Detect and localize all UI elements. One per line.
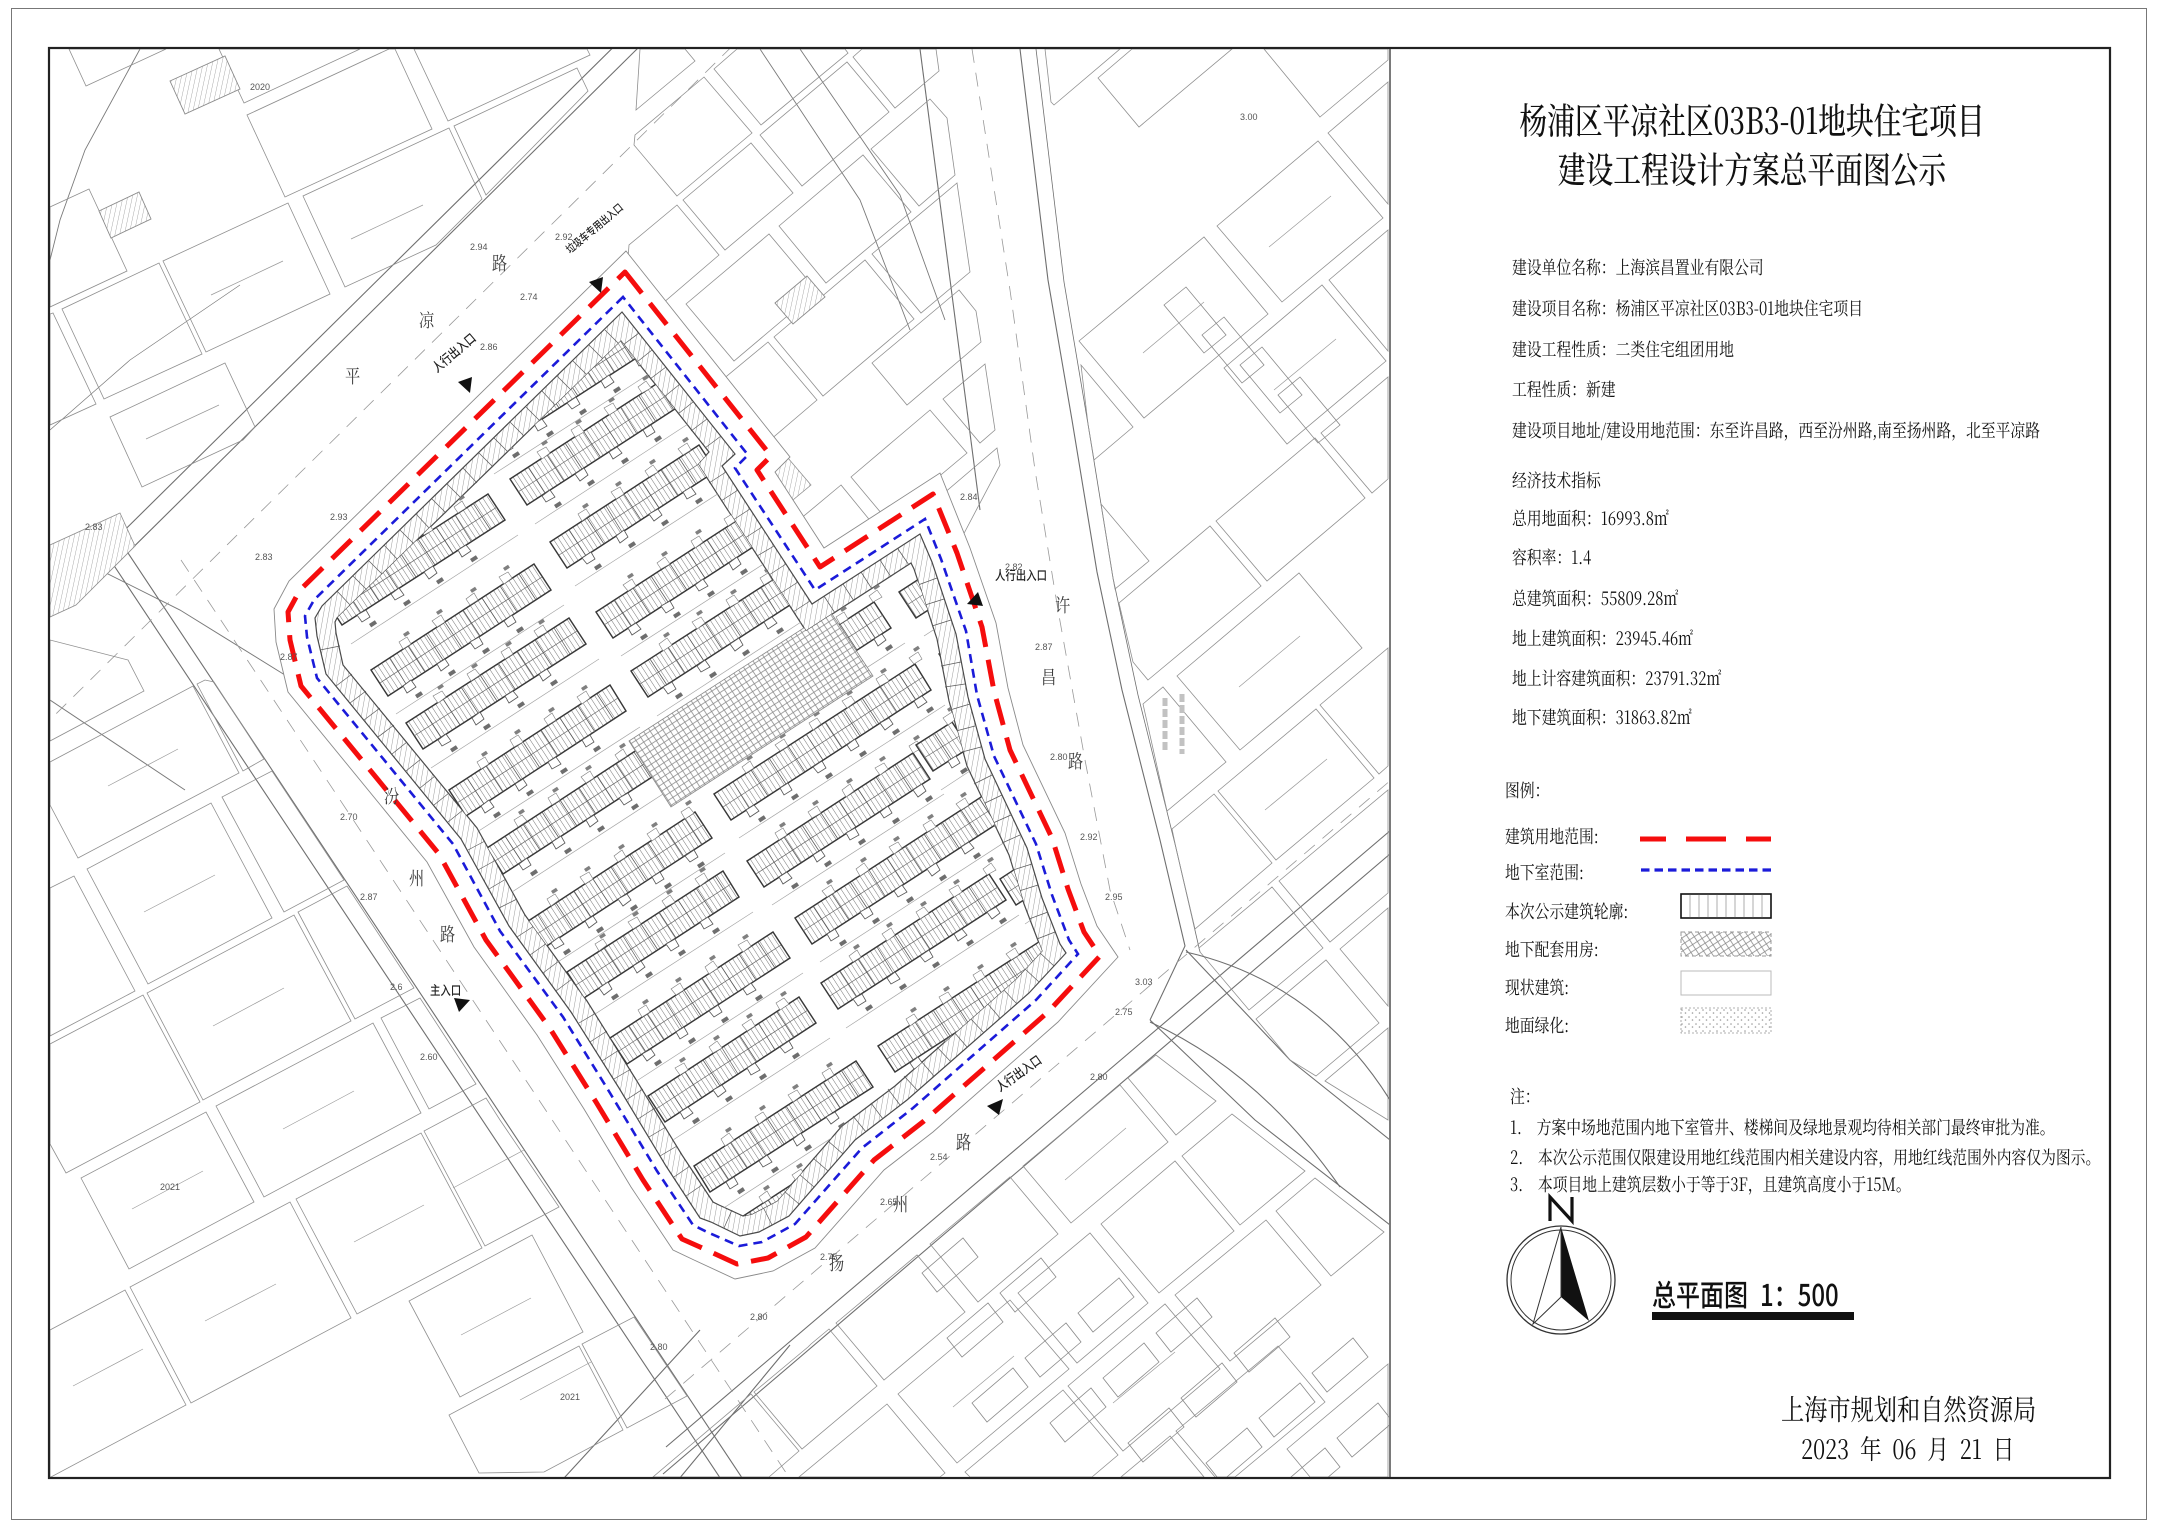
svg-text:2.87: 2.87 [360, 892, 378, 902]
svg-text:2021: 2021 [560, 1392, 580, 1402]
svg-text:2.93: 2.93 [330, 512, 348, 522]
svg-text:2.74: 2.74 [520, 292, 538, 302]
svg-text:2.65: 2.65 [880, 1197, 898, 1207]
svg-text:2.95: 2.95 [1105, 892, 1123, 902]
svg-text:2.80: 2.80 [1090, 1072, 1108, 1082]
svg-text:2.75: 2.75 [1115, 1007, 1133, 1017]
svg-text:2.54: 2.54 [930, 1152, 948, 1162]
svg-text:2.86: 2.86 [480, 342, 498, 352]
svg-text:2.94: 2.94 [470, 242, 488, 252]
svg-text:2.80: 2.80 [750, 1312, 768, 1322]
svg-text:2.75: 2.75 [820, 1252, 838, 1262]
svg-text:2.84: 2.84 [960, 492, 978, 502]
svg-text:2.60: 2.60 [420, 1052, 438, 1062]
svg-text:2.70: 2.70 [340, 812, 358, 822]
svg-text:2.82: 2.82 [1005, 562, 1023, 572]
svg-text:2020: 2020 [250, 82, 270, 92]
svg-text:3.03: 3.03 [1135, 977, 1153, 987]
svg-text:2.83: 2.83 [255, 552, 273, 562]
svg-text:2.6: 2.6 [390, 982, 403, 992]
svg-text:2021: 2021 [160, 1182, 180, 1192]
svg-text:2.92: 2.92 [555, 232, 573, 242]
svg-text:2.92: 2.92 [1080, 832, 1098, 842]
svg-text:2.87: 2.87 [280, 652, 298, 662]
svg-text:2.87: 2.87 [1035, 642, 1053, 652]
svg-text:2.80: 2.80 [1050, 752, 1068, 762]
svg-text:2.83: 2.83 [85, 522, 103, 532]
svg-text:3.00: 3.00 [1240, 112, 1258, 122]
svg-text:2.80: 2.80 [650, 1342, 668, 1352]
